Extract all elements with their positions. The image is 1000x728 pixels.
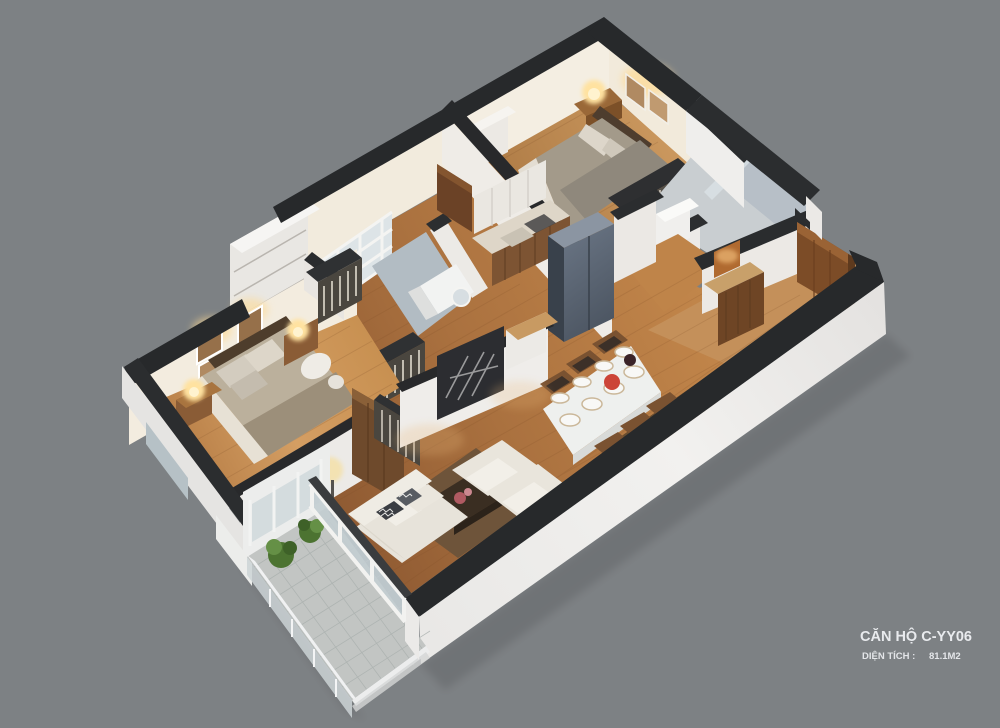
- svg-text:DIỆN TÍCH :: DIỆN TÍCH :: [862, 650, 915, 662]
- svg-text:81.1M2: 81.1M2: [929, 651, 961, 662]
- svg-text:CĂN HỘ C-YY06: CĂN HỘ C-YY06: [860, 627, 972, 645]
